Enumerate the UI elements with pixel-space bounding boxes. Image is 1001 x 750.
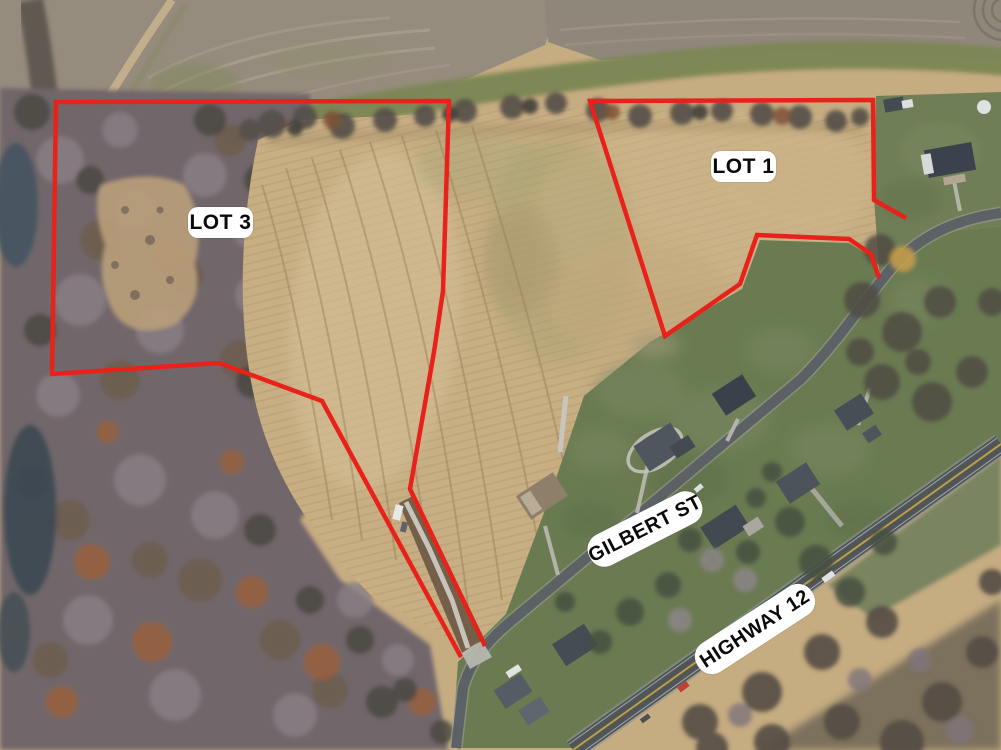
- aerial-photo: [0, 0, 1001, 750]
- lot3-label: LOT 3: [188, 207, 253, 238]
- lot1-label: LOT 1: [711, 151, 776, 182]
- aerial-lot-map: LOT 3 LOT 1 GILBERT ST HIGHWAY 12: [0, 0, 1001, 750]
